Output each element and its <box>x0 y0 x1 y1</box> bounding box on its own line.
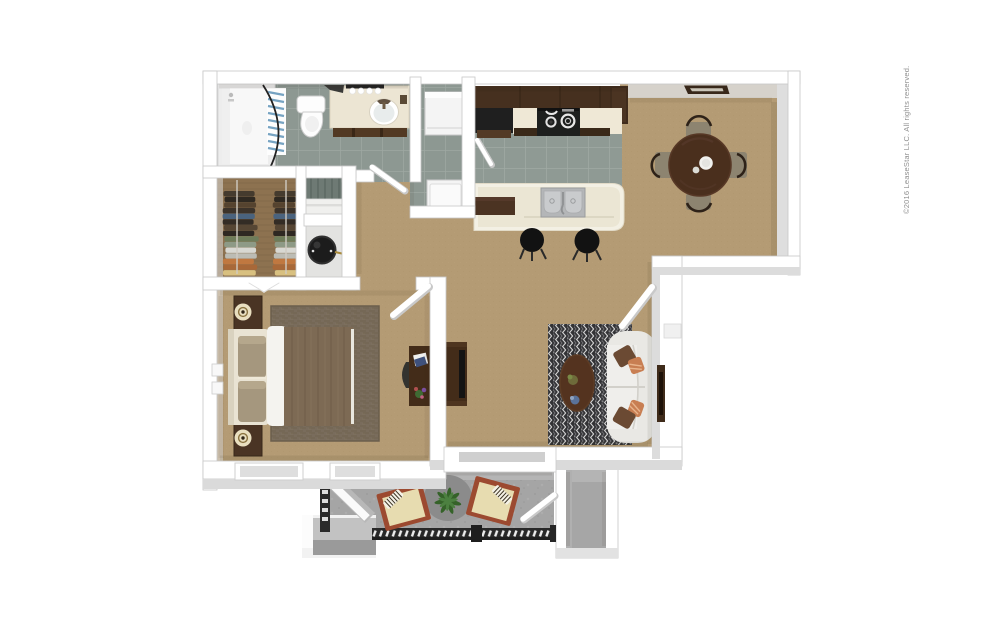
svg-text:©2016 LeaseStar LLC. All right: ©2016 LeaseStar LLC. All rights reserved… <box>902 66 911 214</box>
